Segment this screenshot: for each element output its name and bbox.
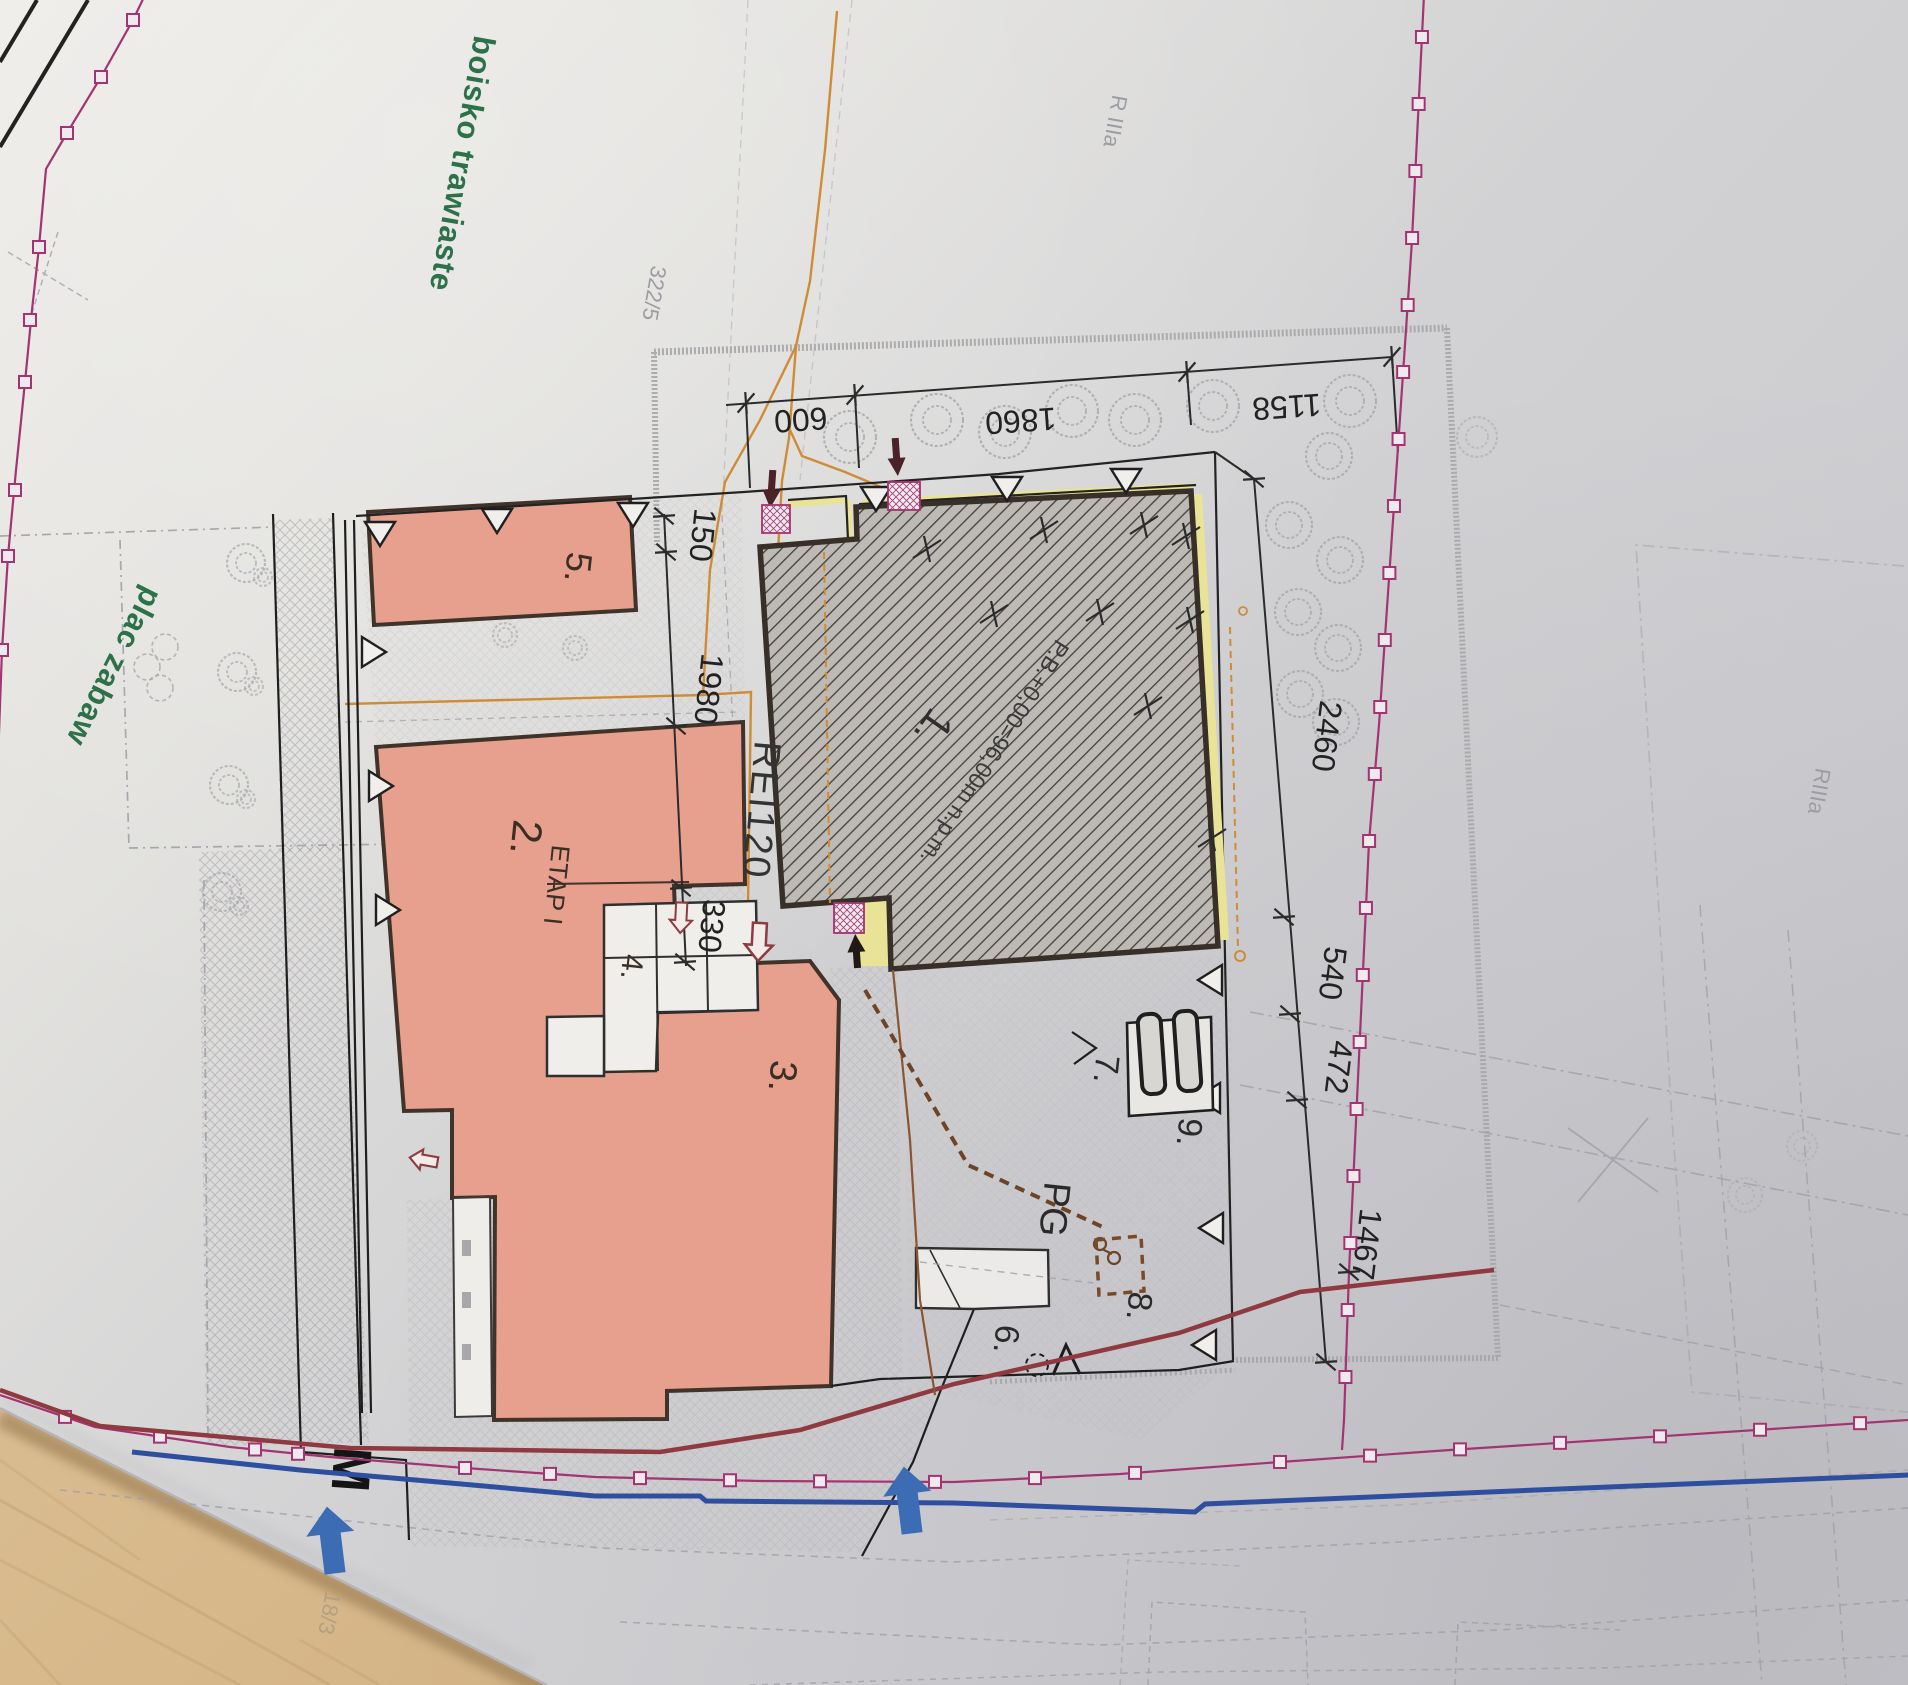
svg-text:7.: 7. [1086, 1053, 1127, 1085]
svg-text:540: 540 [1312, 945, 1354, 1002]
svg-text:4.: 4. [614, 953, 649, 981]
svg-text:600: 600 [773, 400, 829, 440]
svg-text:330: 330 [691, 898, 732, 955]
svg-text:5.: 5. [556, 550, 600, 584]
svg-text:9.: 9. [1169, 1116, 1210, 1148]
svg-text:8.: 8. [1119, 1290, 1160, 1322]
svg-text:2.: 2. [501, 818, 551, 858]
svg-text:1860: 1860 [984, 401, 1058, 442]
svg-text:1158: 1158 [1251, 387, 1322, 428]
svg-text:1980: 1980 [687, 652, 730, 727]
svg-text:6.: 6. [986, 1323, 1027, 1355]
svg-text:M: M [319, 1445, 382, 1494]
svg-text:3.: 3. [759, 1058, 804, 1094]
svg-text:PG: PG [1030, 1180, 1078, 1239]
svg-text:150: 150 [682, 507, 723, 564]
